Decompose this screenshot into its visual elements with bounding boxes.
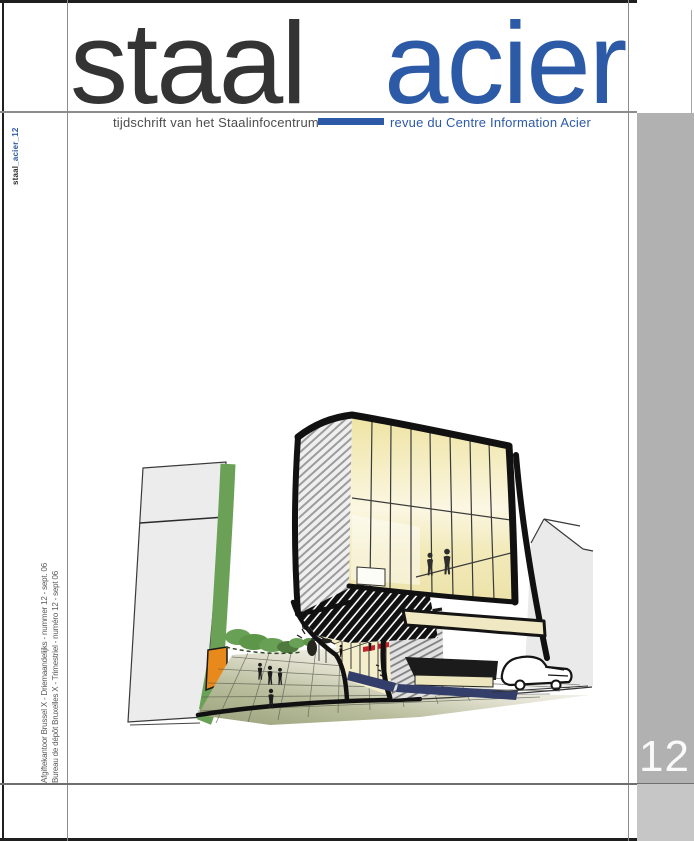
spine-title-blue: _acier_12 bbox=[11, 127, 20, 165]
postal-imprint: Afgiftekantoor Brussel X - Driemaandelij… bbox=[39, 535, 63, 783]
spine-title-dark: staal bbox=[11, 166, 20, 185]
postal-imprint-line1: Afgiftekantoor Brussel X - Driemaandelij… bbox=[39, 535, 50, 783]
masthead-title-dutch: staal bbox=[70, 5, 305, 121]
left-edge-line bbox=[2, 0, 4, 841]
hedge-trees bbox=[225, 629, 315, 653]
right-margin-line bbox=[691, 10, 692, 113]
right-gray-panel-footer bbox=[637, 784, 694, 841]
magazine-cover: staal acier tijdschrift van het Staalinf… bbox=[0, 0, 694, 841]
glass-cube-building bbox=[295, 415, 545, 643]
issue-number: 12 bbox=[639, 735, 690, 779]
spine-title: staal_acier_12 bbox=[10, 105, 22, 185]
left-column-line bbox=[67, 0, 68, 841]
right-column-line bbox=[628, 0, 629, 841]
cover-illustration bbox=[120, 395, 625, 735]
right-gray-panel: 12 bbox=[637, 113, 694, 783]
masthead-title-french: acier bbox=[384, 5, 625, 121]
postal-imprint-line2: Bureau de dépôt Bruxelles X - Trimestrie… bbox=[50, 535, 61, 783]
subtitle-dutch: tijdschrift van het Staalinfocentrum bbox=[113, 116, 319, 130]
footer-rule bbox=[0, 783, 694, 785]
masthead-underscore-bar bbox=[318, 118, 384, 125]
subtitle-french: revue du Centre Information Acier bbox=[390, 116, 591, 130]
